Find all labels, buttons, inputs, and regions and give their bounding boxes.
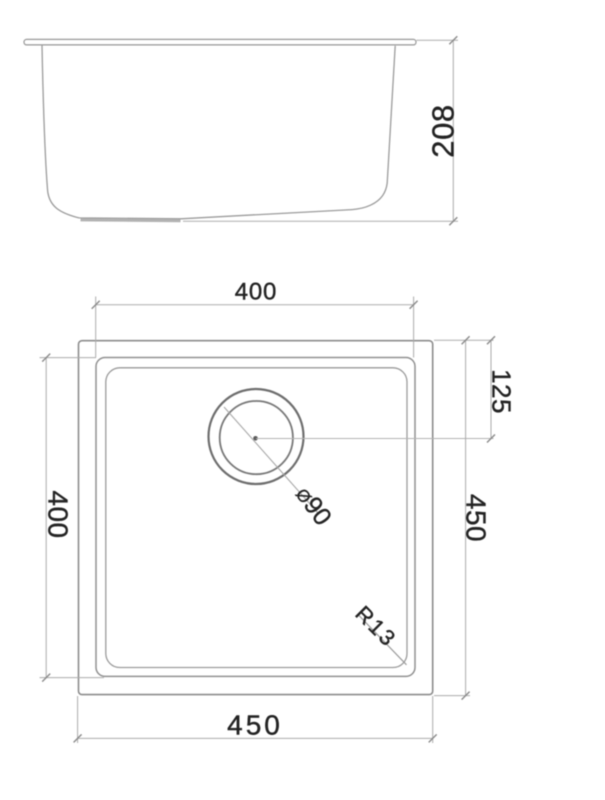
svg-text:400: 400: [43, 490, 74, 538]
svg-text:400: 400: [235, 279, 277, 306]
svg-text:Ø90: Ø90: [290, 481, 337, 531]
svg-text:450: 450: [461, 494, 492, 542]
svg-text:208: 208: [426, 104, 461, 158]
svg-text:125: 125: [486, 369, 516, 414]
svg-text:450: 450: [227, 710, 283, 741]
svg-text:R13: R13: [350, 601, 402, 653]
